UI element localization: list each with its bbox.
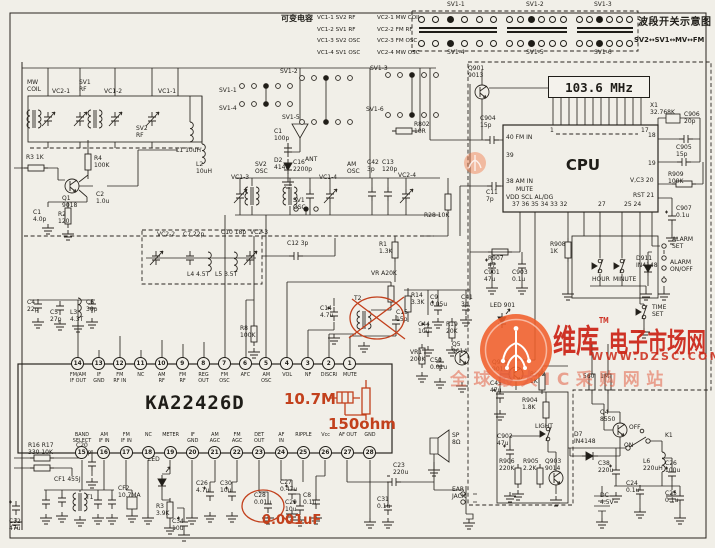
component-label: C41 3p: [461, 295, 473, 308]
cpu-label: CPU: [558, 156, 608, 174]
ic-pin-24: 24: [275, 446, 288, 459]
ic-pin-6: 6: [239, 357, 252, 370]
switch-contact: [476, 16, 483, 23]
component-label: R1 1.3K: [379, 242, 392, 255]
lcd-frequency-display: 103.6 MHz: [548, 76, 650, 98]
light-switch-label: LIGHT: [535, 424, 553, 431]
component-label: C905 15p: [676, 145, 692, 158]
component-label: C9 0.05u: [430, 295, 447, 308]
component-label: T1: [86, 495, 93, 502]
component-label: VR1 200K: [410, 350, 425, 363]
component-label: VC2-1: [52, 89, 70, 96]
component-label: D2 4148: [274, 158, 289, 171]
component-label: C1 100p: [274, 129, 289, 142]
varcap-legend-row: VC1-4 SV1 OSCVC2-4 MW OSC: [317, 48, 449, 60]
component-label: Q903 9014: [545, 459, 561, 472]
ic-pin-4: 4: [280, 357, 293, 370]
component-label: C8 0.1u: [303, 493, 316, 506]
component-label: MW COIL: [27, 80, 41, 93]
ic-pin-label-25: RIPPLE: [292, 433, 316, 439]
component-label: Q1 9018: [62, 196, 77, 209]
red-note-filter: 10.7M: [284, 390, 336, 408]
switch-contact: [586, 40, 593, 47]
ic-pin-17: 17: [120, 446, 133, 459]
ic-pin-label-20: IF GND: [181, 433, 205, 444]
alarm-onoff-label: ALARM ON/OFF: [670, 260, 693, 273]
component-label: D911 IN4148: [636, 256, 658, 269]
component-label: SV2 OSC: [255, 162, 268, 175]
ear-jack-label: EAR JACK: [452, 487, 466, 500]
component-label: L1 10uH: [176, 148, 201, 155]
component-label: Q5 9014: [452, 342, 467, 355]
ic-pin-label-19: METER: [159, 433, 183, 439]
switch-contact: [549, 40, 556, 47]
component-label: C16 2200p: [293, 160, 312, 173]
component-label: C31 0.1u: [377, 497, 390, 510]
component-label: VC1-1: [158, 89, 176, 96]
ic-pin-label-15: BAND SELECT: [70, 433, 94, 444]
switch-contact: [560, 16, 567, 23]
ic-pin-21: 21: [208, 446, 221, 459]
hour-switch-label: HOUR: [592, 277, 610, 284]
ic-pin-label-24: AF IN: [269, 433, 293, 444]
component-label: SV1-5: [282, 115, 300, 122]
component-label: SV1 OSC: [293, 198, 306, 211]
switch-contact: [432, 40, 439, 47]
component-label: SV1-6: [366, 107, 384, 114]
watermark-url: WWW.DZSC.COM: [591, 350, 715, 363]
varcap-legend-title: 可变电容: [281, 13, 313, 24]
ic-pin-label-22: FM AGC: [225, 433, 249, 444]
component-label: VR A20K: [371, 271, 397, 278]
component-label: C27 0.47u: [280, 480, 297, 493]
red-note-resistor: 150ohm: [328, 415, 396, 433]
component-label: 1M: [600, 374, 609, 381]
ic-pin-label-21: AM AGC: [203, 433, 227, 444]
component-label: C14 4.7u: [320, 306, 333, 319]
main-ic-part-number: KA22426D: [95, 392, 295, 414]
ic-pin-1: 1: [343, 357, 356, 370]
component-label: C32 47u: [9, 519, 21, 532]
component-label: VC1-2: [104, 89, 122, 96]
component-label: C50 0.01u: [430, 358, 447, 371]
switch-contact: [596, 40, 603, 47]
component-label: C902 47u: [497, 434, 513, 447]
component-label: C4 22p: [27, 300, 38, 313]
switch-bar: [577, 27, 633, 29]
switch-contact: [626, 40, 633, 47]
ic-pin-5: 5: [259, 357, 272, 370]
watermark-slogan: 全球最大IC采购网站: [450, 365, 670, 390]
component-label: C12 3p: [287, 241, 308, 248]
switch-contact: [461, 16, 468, 23]
component-label: 1: [550, 128, 554, 135]
component-label: D7 IN4148: [574, 432, 596, 445]
ic-pin-23: 23: [252, 446, 265, 459]
switch-contact: [586, 16, 593, 23]
component-label: SV2 RF: [136, 126, 148, 139]
component-label: RST 21: [633, 193, 654, 200]
switch-contact: [606, 16, 613, 23]
component-label: VC2-2: [157, 232, 175, 239]
component-label: VC2-4: [398, 173, 416, 180]
switch-contact: [418, 40, 425, 47]
component-label: 19: [648, 161, 656, 168]
band-switch-label: SV1-6: [594, 50, 612, 57]
component-label: 40 FM IN: [506, 135, 532, 142]
watermark-brand-big: 维库: [553, 322, 599, 360]
watermark-brand-rest: 电子市场网: [609, 328, 706, 359]
ic-pin-22: 22: [230, 446, 243, 459]
component-label: Q4 8550: [600, 410, 615, 423]
component-label: SV1-3: [370, 66, 388, 73]
component-label: C30 10u: [220, 481, 232, 494]
switch-contact: [418, 16, 425, 23]
switch-contact: [538, 40, 545, 47]
component-label: 18: [648, 133, 656, 140]
component-label: R19 20K: [446, 322, 458, 335]
component-label: C6 30p: [86, 300, 97, 313]
switch-contact: [528, 40, 535, 47]
ic-pin-15: 15: [75, 446, 88, 459]
component-label: ON: [624, 443, 633, 450]
ic-pin-25: 25: [297, 446, 310, 459]
component-label: VC1-4: [319, 175, 337, 182]
component-label: C26 100u: [665, 461, 680, 474]
ic-pin-19: 19: [164, 446, 177, 459]
component-label: R28 10K: [424, 213, 449, 220]
component-label: L2 10uH: [196, 162, 212, 175]
component-label: OFF: [629, 425, 641, 432]
battery-label: DC 4.5V: [600, 493, 614, 506]
component-label: X1 32.768K: [650, 103, 675, 116]
component-label: R902 1K: [530, 372, 546, 385]
component-label: 560: [583, 374, 594, 381]
switch-bar: [507, 31, 567, 33]
watermark-tm: TM: [599, 316, 609, 325]
ic-pin-18: 18: [142, 446, 155, 459]
switch-contact: [616, 16, 623, 23]
switch-contact: [432, 16, 439, 23]
switch-contact: [447, 16, 454, 23]
component-label: CF2 10.7MA: [118, 486, 141, 499]
component-label: SV1-4: [219, 106, 237, 113]
band-switch-title: 波段开关示意图: [638, 13, 712, 28]
component-label: R802 10R: [414, 122, 430, 135]
switch-contact: [447, 40, 454, 47]
component-label: R904 1.8K: [522, 398, 538, 411]
switch-contact: [506, 40, 513, 47]
switch-contact: [528, 16, 535, 23]
component-label: CF1 455J: [54, 477, 81, 484]
band-switch-label: SV1-2: [526, 2, 544, 9]
schematic-page: MW COILVC2-1SV1 RFVC1-2VC1-1SV2 RFL1 10u…: [0, 0, 715, 548]
component-label: C25 0.1u: [665, 491, 678, 504]
component-label: C2 1.0u: [96, 192, 109, 205]
ic-pin-3: 3: [301, 357, 314, 370]
component-label: T2: [354, 296, 361, 303]
ic-pin-9: 9: [176, 357, 189, 370]
component-label: VC2-3: [250, 230, 268, 237]
ic-pin-11: 11: [134, 357, 147, 370]
component-label: R3 3.9K: [156, 504, 169, 517]
component-label: R906 220K: [499, 459, 515, 472]
ic-pin-8: 8: [197, 357, 210, 370]
component-label: L6 220uH: [643, 459, 663, 472]
watermark-brand: 维库TM电子市场网: [553, 316, 706, 362]
switch-contact: [517, 40, 524, 47]
component-label: R16 R17 330 10K: [28, 443, 54, 456]
band-switch-formula: SV2↔SV1↔MV↔FM: [634, 36, 704, 44]
component-label: 37 36 35 34 33 32: [512, 202, 567, 209]
component-symbols: [9, 85, 696, 531]
watermark-mini-logo-icon: [462, 150, 488, 176]
ic-pin-20: 20: [186, 446, 199, 459]
component-label: R4 100K: [94, 156, 109, 169]
ic-pin-label-1: MUTE: [338, 373, 362, 379]
switch-contact: [596, 16, 603, 23]
ic-pin-label-23: DET OUT: [247, 433, 271, 444]
component-label: 38 AM IN: [506, 179, 533, 186]
switch-contact: [626, 16, 633, 23]
component-label: R3 1K: [26, 155, 44, 162]
ic-pin-14: 14: [71, 357, 84, 370]
component-label: R2 120: [58, 212, 69, 225]
switch-contact: [490, 40, 497, 47]
switch-bar: [507, 27, 567, 29]
speaker-label: SP 8Ω: [452, 433, 460, 446]
component-label: LED 901: [490, 303, 515, 310]
ic-pin-2: 2: [322, 357, 335, 370]
switch-contact: [576, 16, 583, 23]
component-label: C23 220u: [393, 463, 408, 476]
ic-pin-label-18: NC: [136, 433, 160, 439]
band-switch-label: SV1-3: [594, 2, 612, 9]
component-label: 25 24: [624, 202, 641, 209]
component-label: C42 3p: [367, 160, 379, 173]
component-label: AM OSC: [347, 162, 360, 175]
ic-pin-label-27: AF OUT: [336, 433, 360, 439]
band-switch-label: SV1-4: [447, 50, 465, 57]
component-label: C907 0.1u: [676, 206, 692, 219]
band-switch-label: SV1-1: [447, 2, 465, 9]
component-label: MUTE: [516, 187, 533, 194]
component-label: L5 3.5T: [215, 272, 237, 279]
switch-contact: [576, 40, 583, 47]
ic-pin-16: 16: [97, 446, 110, 459]
component-label: C1 4.0p: [33, 210, 46, 223]
switch-contact: [517, 16, 524, 23]
ic-pin-label-28: GND: [358, 433, 382, 439]
component-label: R905 2.2K: [523, 459, 539, 472]
ic-pin-12: 12: [113, 357, 126, 370]
ic-pin-7: 7: [218, 357, 231, 370]
ic-pin-label-26: Vcc: [314, 433, 338, 439]
component-label: C45 47u: [490, 381, 502, 394]
component-label: C44 10u: [418, 322, 430, 335]
component-label: 39: [506, 153, 514, 160]
component-label: C34 10u: [172, 519, 184, 532]
switch-contact: [606, 40, 613, 47]
ic-pin-28: 28: [363, 446, 376, 459]
switch-contact: [616, 40, 623, 47]
component-label: SV1-2: [280, 69, 298, 76]
component-label: C7 22p: [183, 232, 204, 239]
ic-pin-10: 10: [155, 357, 168, 370]
component-label: C26 4.7u: [196, 481, 209, 494]
power-switch-label: K1: [665, 433, 673, 440]
component-label: C903 0.1u: [512, 270, 528, 283]
component-label: C11 7p: [486, 190, 498, 203]
component-label: C906 20p: [684, 112, 700, 125]
switch-contact: [506, 16, 513, 23]
switch-bar: [577, 31, 633, 33]
component-label: C24 0.1u: [626, 481, 639, 494]
minute-switch-label: MINUTE: [613, 277, 636, 284]
switch-contact: [490, 16, 497, 23]
component-label: Q902 9013: [492, 360, 508, 373]
component-label: Q901 9013: [468, 66, 484, 79]
ic-pin-label-17: FM IF IN: [114, 433, 138, 444]
component-label: R909 100K: [668, 172, 684, 185]
band-switch-label: SV1-5: [526, 50, 544, 57]
switch-contact: [560, 40, 567, 47]
switch-contact: [538, 16, 545, 23]
ic-pin-label-16: AM IF IN: [92, 433, 116, 444]
component-label: C29 10u: [285, 500, 297, 513]
component-label: C38 220u: [598, 461, 613, 474]
component-label: R907 47: [488, 256, 504, 269]
band-switch-block: [504, 14, 570, 48]
band-switch-block: [574, 14, 636, 48]
component-label: V,C3 20: [630, 178, 654, 185]
ic-pin-26: 26: [319, 446, 332, 459]
switch-contact: [549, 16, 556, 23]
ic-pin-13: 13: [92, 357, 105, 370]
component-label: L4 4.5T: [187, 272, 209, 279]
component-label: C901 47u: [484, 270, 500, 283]
switch-bar: [419, 31, 497, 33]
alarm-set-label: ALARM SET: [672, 237, 693, 250]
switch-contact: [476, 40, 483, 47]
switch-bar: [419, 27, 497, 29]
component-label: C13 120p: [382, 160, 397, 173]
component-label: SV1-1: [219, 88, 237, 95]
component-label: R8 100K: [240, 326, 255, 339]
component-label: C28 0.01u: [254, 493, 271, 506]
component-label: C904 15p: [480, 116, 496, 129]
component-label: C10 18p: [221, 230, 246, 237]
component-label: C15 15p: [396, 310, 408, 323]
component-label: SV1 RF: [79, 80, 91, 93]
switch-contact: [461, 40, 468, 47]
time-set-label: TIME SET: [652, 305, 666, 318]
component-label: C5 27p: [50, 310, 61, 323]
component-label: R14 3.3K: [411, 293, 424, 306]
component-label: L3 4.3T: [70, 310, 83, 323]
component-label: VC1-3: [231, 175, 249, 182]
ic-pin-27: 27: [341, 446, 354, 459]
red-note-capacitor: 0.001uF: [262, 513, 321, 528]
component-label: R908 1K: [550, 242, 566, 255]
band-switch-block: [416, 14, 500, 48]
component-label: 27: [598, 202, 606, 209]
